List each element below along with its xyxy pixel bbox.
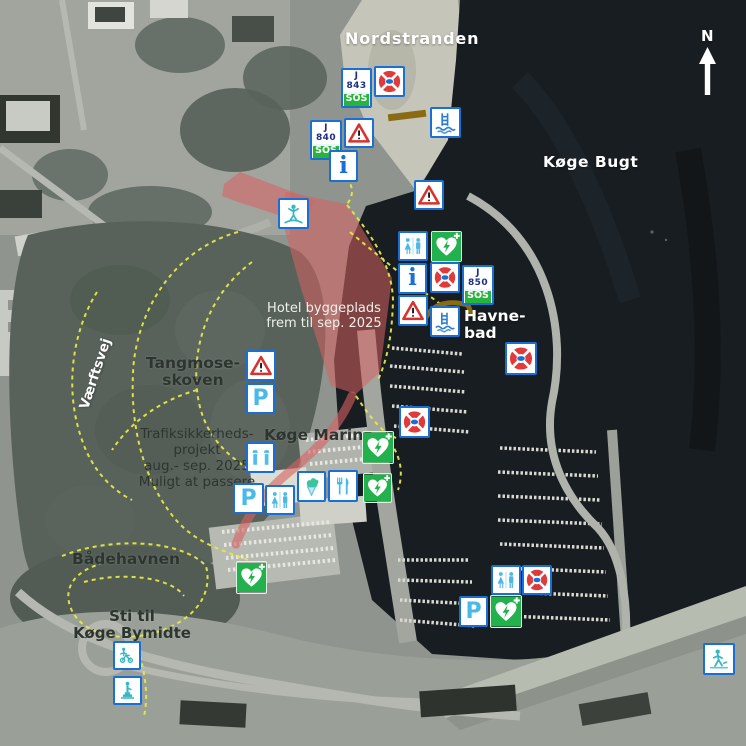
region-label-havnebad: Havne- bad <box>464 308 526 343</box>
restaurant-icon[interactable] <box>328 470 358 502</box>
warning-glyph <box>249 353 273 378</box>
toilet-glyph <box>494 568 518 592</box>
lifebuoy-glyph <box>525 568 549 592</box>
lifebuoy-icon[interactable] <box>430 262 460 293</box>
walking-glyph <box>706 646 732 672</box>
lifebuoy-icon[interactable] <box>522 565 552 595</box>
region-label-nordstranden: Nordstranden <box>345 30 479 48</box>
parking-letter: P <box>465 601 481 623</box>
parking-letter: P <box>240 488 256 510</box>
defibrillator-glyph <box>364 474 391 502</box>
ice-cream-icon[interactable] <box>297 471 326 502</box>
defibrillator-icon[interactable] <box>362 431 394 464</box>
compass-north-label: N <box>701 28 714 45</box>
walking-icon[interactable] <box>703 643 735 675</box>
restaurant-glyph <box>331 473 355 499</box>
defibrillator-icon[interactable] <box>431 231 462 262</box>
shower-icon[interactable] <box>246 442 275 473</box>
playground-glyph <box>281 201 306 226</box>
region-label-koge-bugt: Køge Bugt <box>543 154 638 171</box>
parking-icon[interactable]: P <box>246 383 275 414</box>
region-label-koge-marina: Køge Marina <box>264 427 374 444</box>
warning-glyph <box>401 298 425 323</box>
lifebuoy-icon[interactable] <box>399 406 430 438</box>
sos-sign-code: J 850 <box>464 267 492 289</box>
lifebuoy-icon[interactable] <box>374 66 405 97</box>
playground-icon[interactable] <box>113 641 141 670</box>
sos-sign-code: J 840 <box>312 122 340 144</box>
parking-icon[interactable]: P <box>233 483 264 514</box>
lifebuoy-icon[interactable] <box>505 342 537 375</box>
lifebuoy-glyph <box>508 345 534 372</box>
ice-cream-glyph <box>300 474 323 499</box>
shower-glyph <box>249 445 272 470</box>
toilet-icon[interactable] <box>265 485 295 515</box>
defibrillator-glyph <box>432 232 461 261</box>
warning-icon[interactable] <box>344 118 374 148</box>
sos-sign-sos: SOS <box>465 289 491 303</box>
region-label-badehavnen: Bådehavnen <box>72 551 180 568</box>
warning-glyph <box>417 183 441 207</box>
info-letter: i <box>408 268 417 289</box>
info-letter: i <box>339 156 348 177</box>
toilet-glyph <box>268 488 292 512</box>
playground-glyph <box>116 644 138 667</box>
north-arrow-icon <box>698 47 717 95</box>
note-traffic-project: Trafiksikkerheds- projekt aug.- sep. 202… <box>139 427 256 491</box>
sos-callpoint-sign[interactable]: J 843 SOS <box>341 68 372 108</box>
lifebuoy-glyph <box>402 409 427 435</box>
sos-sign-sos: SOS <box>344 92 370 106</box>
info-icon[interactable]: i <box>398 263 427 294</box>
bathing-ladder-icon[interactable] <box>430 306 460 337</box>
statue-glyph <box>116 679 139 702</box>
warning-icon[interactable] <box>246 350 276 381</box>
defibrillator-icon[interactable] <box>490 595 522 628</box>
map-canvas: Nordstranden Køge Bugt Havne- bad Tangmo… <box>0 0 746 746</box>
sos-callpoint-sign[interactable]: J 850 SOS <box>462 265 494 305</box>
warning-icon[interactable] <box>414 180 444 210</box>
defibrillator-glyph <box>491 596 521 627</box>
defibrillator-glyph <box>363 432 393 463</box>
bathing-ladder-glyph <box>433 110 458 135</box>
defibrillator-icon[interactable] <box>236 561 267 594</box>
info-icon[interactable]: i <box>329 150 358 182</box>
bathing-ladder-glyph <box>433 309 457 334</box>
region-label-sti-til-bymidte: Sti til Køge Bymidte <box>73 608 191 642</box>
toilet-icon[interactable] <box>491 565 521 595</box>
playground-icon[interactable] <box>278 198 309 229</box>
warning-icon[interactable] <box>398 295 428 326</box>
defibrillator-icon[interactable] <box>363 473 392 503</box>
defibrillator-glyph <box>237 562 266 593</box>
region-label-tangmoseskoven: Tangmose- skoven <box>146 355 240 390</box>
parking-letter: P <box>252 388 268 410</box>
lifebuoy-glyph <box>377 69 402 94</box>
statue-icon[interactable] <box>113 676 142 705</box>
note-hotel-construction: Hotel byggeplads frem til sep. 2025 <box>266 301 381 332</box>
toilet-icon[interactable] <box>398 231 428 261</box>
toilet-glyph <box>401 234 425 258</box>
parking-icon[interactable]: P <box>459 596 488 627</box>
warning-glyph <box>347 121 371 145</box>
lifebuoy-glyph <box>433 265 457 290</box>
sos-sign-code: J 843 <box>343 70 370 92</box>
bathing-ladder-icon[interactable] <box>430 107 461 138</box>
